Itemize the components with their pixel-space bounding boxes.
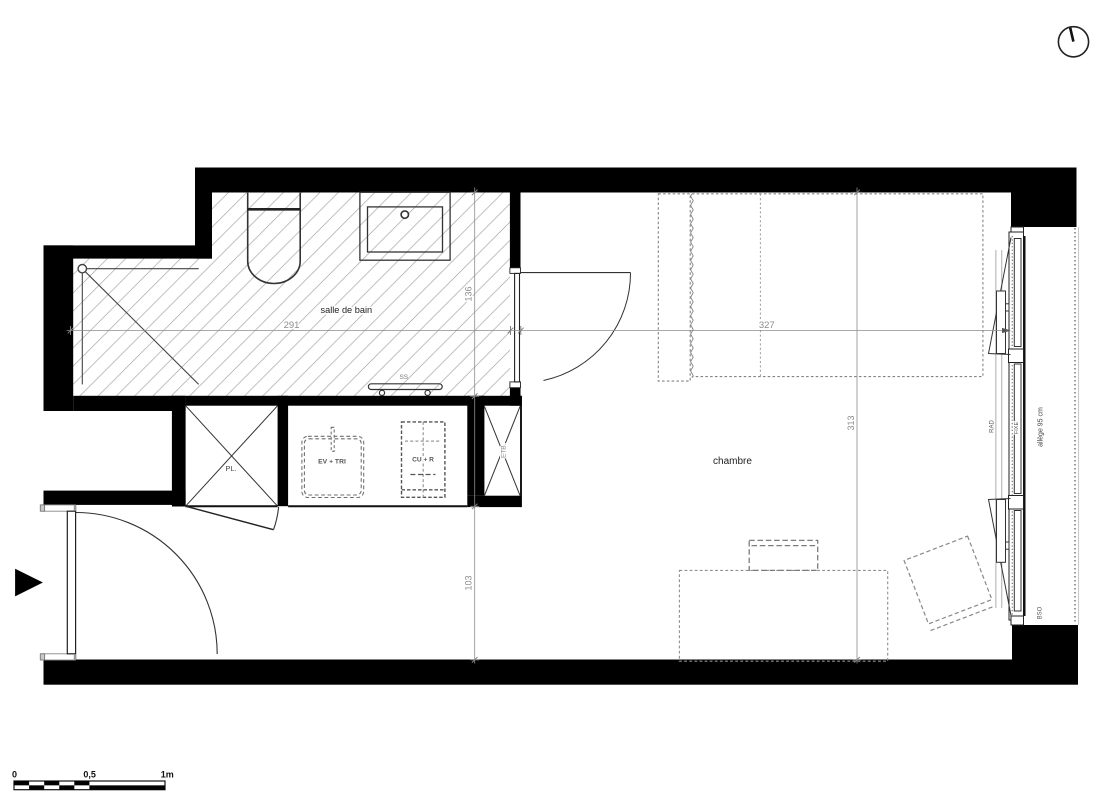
svg-text:BSO: BSO [1038,606,1044,619]
svg-text:103: 103 [464,575,474,590]
svg-text:136: 136 [464,286,474,301]
svg-text:291: 291 [284,320,300,331]
svg-text:allège 95 cm: allège 95 cm [1038,407,1045,447]
svg-text:FIXE: FIXE [1014,422,1020,435]
svg-text:PL.: PL. [225,464,236,473]
svg-text:SS: SS [399,374,408,381]
svg-text:0: 0 [12,769,17,779]
svg-text:salle de bain: salle de bain [321,305,373,315]
svg-text:EV + TRI: EV + TRI [318,459,346,466]
svg-text:CU + R: CU + R [412,457,434,464]
svg-text:0,5: 0,5 [83,769,96,779]
svg-text:327: 327 [759,320,775,331]
svg-text:ETB.: ETB. [500,443,507,458]
svg-text:RAD: RAD [990,420,996,433]
svg-text:313: 313 [846,415,856,430]
svg-text:1m: 1m [161,769,174,779]
svg-text:chambre: chambre [713,456,752,467]
